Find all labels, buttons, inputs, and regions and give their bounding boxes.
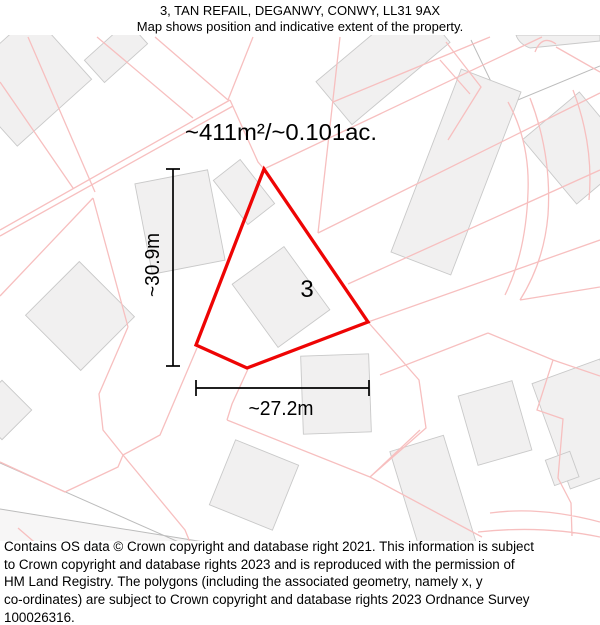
building — [26, 262, 135, 371]
width-dimension-label: ~27.2m — [249, 398, 314, 420]
page-title: 3, TAN REFAIL, DEGANWY, CONWY, LL31 9AX — [0, 3, 600, 19]
road-verge — [516, 35, 600, 48]
map-canvas: ~411m²/~0.101ac. 3 ~30.9m ~27.2m — [0, 35, 600, 541]
copyright-notice: Contains OS data © Crown copyright and d… — [4, 538, 598, 625]
copyright-line: to Crown copyright and database rights 2… — [4, 556, 598, 574]
building — [390, 435, 476, 541]
copyright-line: co-ordinates) are subject to Crown copyr… — [4, 591, 598, 609]
copyright-line: Contains OS data © Crown copyright and d… — [4, 538, 598, 556]
copyright-line: HM Land Registry. The polygons (includin… — [4, 573, 598, 591]
height-dimension-label: ~30.9m — [142, 233, 164, 297]
building — [0, 380, 32, 439]
building — [458, 381, 532, 466]
area-label: ~411m²/~0.101ac. — [185, 119, 377, 145]
building-on-plot — [232, 247, 330, 348]
building — [84, 35, 147, 83]
building — [0, 35, 92, 146]
plot-number-label: 3 — [300, 276, 313, 303]
property-map-page: 3, TAN REFAIL, DEGANWY, CONWY, LL31 9AX … — [0, 0, 600, 625]
header: 3, TAN REFAIL, DEGANWY, CONWY, LL31 9AX … — [0, 0, 600, 35]
building — [316, 35, 450, 125]
road-surface — [0, 509, 235, 541]
copyright-line: 100026316. — [4, 609, 598, 625]
building — [301, 354, 372, 434]
page-subtitle: Map shows position and indicative extent… — [0, 19, 600, 35]
building — [209, 440, 298, 530]
